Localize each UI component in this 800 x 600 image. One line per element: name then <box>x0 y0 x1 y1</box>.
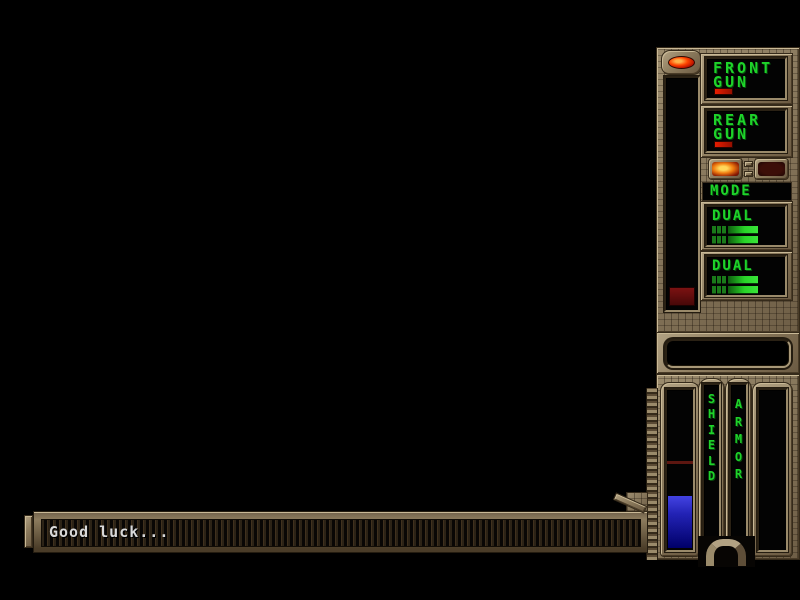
shield-letter: I <box>708 423 715 438</box>
front-gun-ammo-bar <box>714 88 733 95</box>
shield-letter: S <box>708 392 715 407</box>
message-bar-left-cap <box>24 515 33 548</box>
shield-letter: E <box>708 438 715 453</box>
landing-claw-icon <box>706 539 746 566</box>
dual-weapon-panel-top: DUAL <box>700 201 793 251</box>
bomb-energy-charge <box>669 287 695 306</box>
shield-energy-bar-bezel <box>660 382 700 557</box>
dual-top-label: DUAL <box>707 207 785 226</box>
dual-top-energy-bar-1 <box>712 226 785 234</box>
power-led-icon <box>668 56 695 69</box>
game-screen: FRONT GUN REAR GUN MODE DUAL <box>0 0 800 600</box>
rear-gun-ammo-bar <box>714 141 733 148</box>
armor-letter: O <box>735 449 742 467</box>
shield-letter: D <box>708 469 715 484</box>
bomb-energy-column <box>664 76 700 312</box>
rear-gun-label-line2: GUN <box>707 127 785 141</box>
dual-top-energy-bar-2 <box>712 236 785 244</box>
shield-damage-marker <box>667 461 693 464</box>
mode-label: MODE <box>703 183 791 198</box>
message-text: Good luck... <box>49 523 169 541</box>
armor-label-column: A R M O R <box>729 383 748 550</box>
shield-label-bezel: S H I E L D <box>698 378 725 554</box>
shield-energy-fill <box>668 496 692 548</box>
mode-button-left[interactable] <box>708 158 743 180</box>
armor-letter: A <box>735 396 742 414</box>
rear-gun-screen: REAR GUN <box>705 109 787 153</box>
message-bar: Good luck... <box>33 511 648 553</box>
shield-label-column: S H I E L D <box>702 383 721 550</box>
rear-gun-panel: REAR GUN <box>700 105 793 158</box>
mode-button-right[interactable] <box>754 158 789 180</box>
dual-bottom-energy-bar-1 <box>712 276 785 284</box>
power-led-bezel <box>661 50 702 75</box>
armor-letter: R <box>735 466 742 484</box>
armor-letter: M <box>735 431 742 449</box>
mode-button-hinge-bottom <box>744 171 753 177</box>
dual-bottom-screen: DUAL <box>705 255 787 297</box>
score-display-panel <box>656 332 800 374</box>
mode-button-right-light-icon <box>758 162 785 176</box>
score-display <box>665 339 791 368</box>
dual-bottom-energy-bar-2 <box>712 286 785 294</box>
armor-letter: R <box>735 414 742 432</box>
shield-letter: L <box>708 454 715 469</box>
mode-button-hinge-top <box>744 161 753 167</box>
shield-energy-bar <box>665 388 695 552</box>
dual-weapon-panel-bottom: DUAL <box>700 251 793 301</box>
armor-energy-bar <box>757 388 788 552</box>
mode-button-left-light-icon <box>712 162 739 176</box>
mode-label-strip: MODE <box>702 182 792 201</box>
dual-bottom-label: DUAL <box>707 257 785 276</box>
landing-claw-mount <box>698 536 755 567</box>
front-gun-screen: FRONT GUN <box>705 57 787 100</box>
armor-label-bezel: A R M O R <box>725 378 752 554</box>
dual-top-screen: DUAL <box>705 205 787 247</box>
shield-letter: H <box>708 407 715 422</box>
front-gun-panel: FRONT GUN <box>700 53 793 105</box>
front-gun-label-line2: GUN <box>707 75 785 89</box>
armor-energy-bar-bezel <box>752 382 793 557</box>
